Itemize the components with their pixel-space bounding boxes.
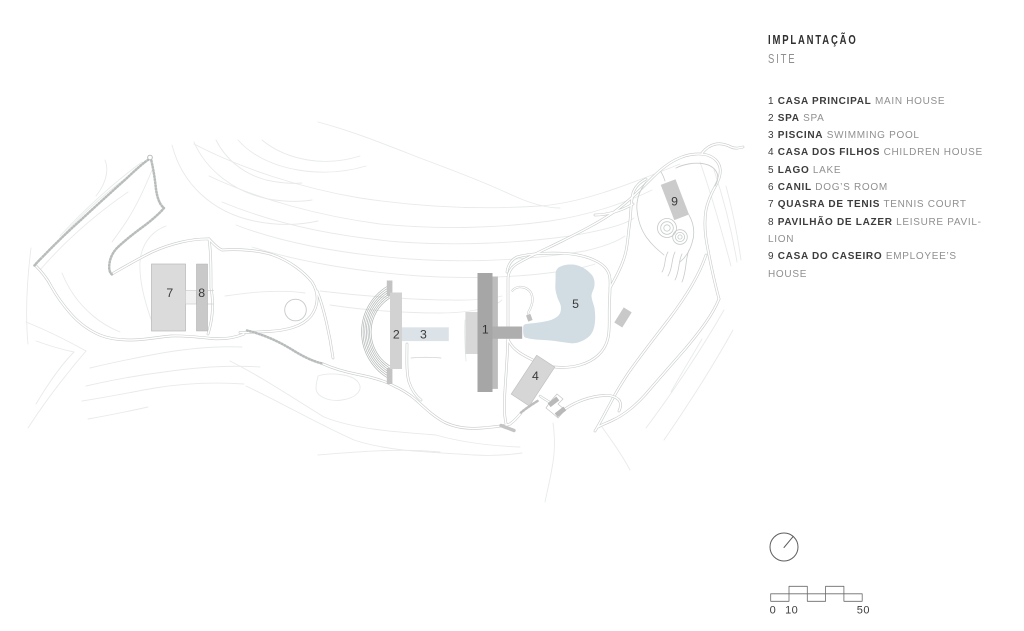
svg-text:7: 7 (166, 286, 173, 300)
svg-text:8: 8 (198, 286, 205, 300)
svg-text:0: 0 (770, 604, 777, 616)
svg-text:10: 10 (785, 604, 798, 616)
svg-text:1: 1 (482, 323, 489, 337)
svg-text:50: 50 (857, 604, 870, 616)
svg-text:2: 2 (393, 327, 400, 341)
svg-text:5: 5 (572, 297, 579, 311)
svg-text:4: 4 (532, 369, 539, 383)
svg-text:9: 9 (671, 195, 678, 209)
svg-text:3: 3 (420, 327, 427, 341)
